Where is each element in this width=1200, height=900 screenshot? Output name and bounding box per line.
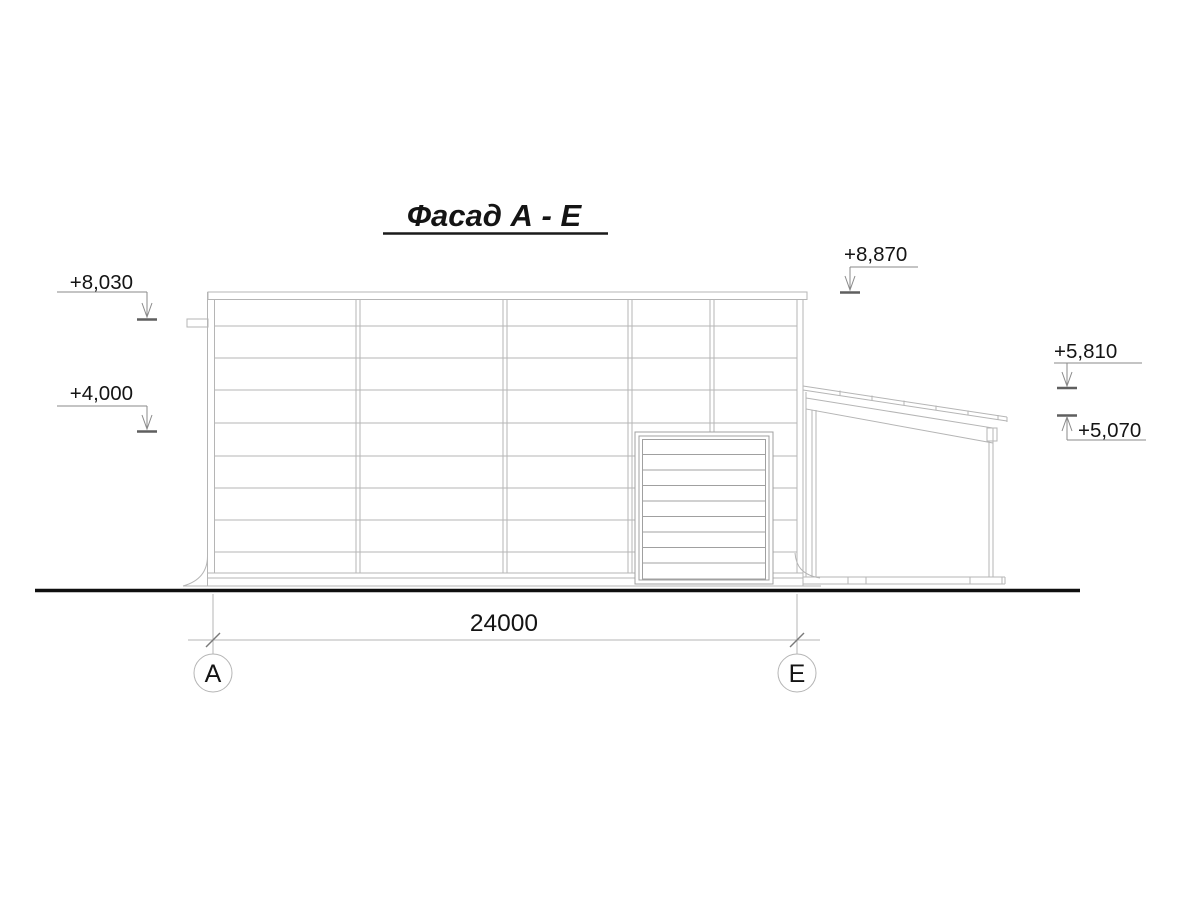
facade-drawing-sheet: Фасад А - Е	[0, 0, 1200, 900]
elevation-mark-parapet-left: +8,030	[57, 271, 157, 320]
elevation-mark-canopy-low: +5,070	[1057, 416, 1146, 443]
side-canopy	[803, 386, 1007, 584]
axis-label-a: А	[205, 660, 222, 688]
elevation-label: +8,870	[844, 243, 907, 266]
elevation-label: +5,070	[1078, 419, 1141, 442]
canopy-base	[803, 577, 1005, 584]
canopy-roof-sheet-top	[803, 386, 1007, 417]
base-flare-left	[183, 556, 208, 586]
sectional-gate	[626, 432, 783, 586]
dimension-value: 24000	[470, 610, 538, 637]
elevation-label: +5,810	[1054, 340, 1117, 363]
gutter-outlet	[187, 319, 208, 327]
elevation-mark-door-top: +4,000	[57, 382, 157, 432]
dimension-block: 24000 А Е	[188, 594, 820, 692]
elevation-mark-canopy-high: +5,810	[1054, 340, 1142, 388]
parapet-band	[208, 292, 807, 300]
canopy-posts	[812, 410, 993, 577]
axis-label-e: Е	[789, 660, 806, 688]
elevation-label: +8,030	[70, 271, 133, 294]
facade-drawing-canvas: Фасад А - Е	[0, 0, 1200, 900]
canopy-roof-sheet-bottom	[803, 390, 1007, 421]
drawing-title-block: Фасад А - Е	[383, 198, 608, 234]
drawing-title: Фасад А - Е	[407, 198, 583, 233]
post-bracket	[987, 428, 997, 441]
elevation-label: +4,000	[70, 382, 133, 405]
elevation-mark-parapet-right: +8,870	[840, 243, 918, 293]
